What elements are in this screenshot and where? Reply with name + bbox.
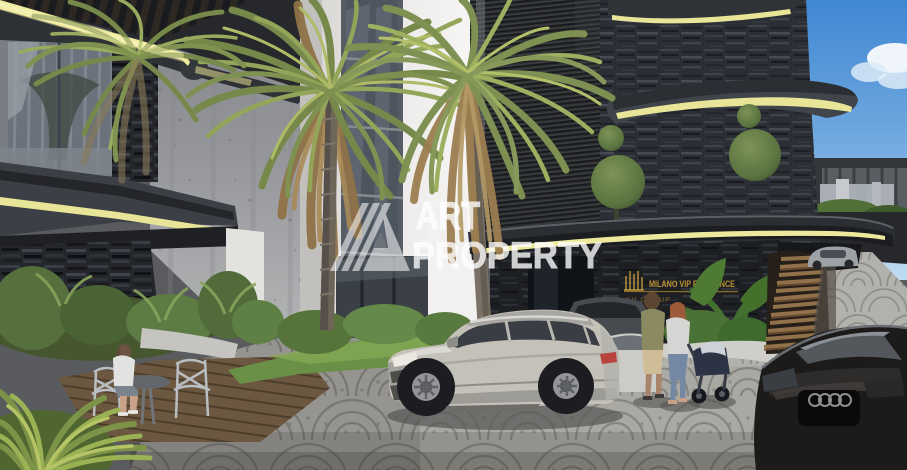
svg-text:PROPERTY: PROPERTY: [412, 235, 602, 276]
svg-text:MILANO VIP RESIDENCE: MILANO VIP RESIDENCE: [649, 279, 735, 289]
svg-text:ART: ART: [416, 195, 480, 238]
